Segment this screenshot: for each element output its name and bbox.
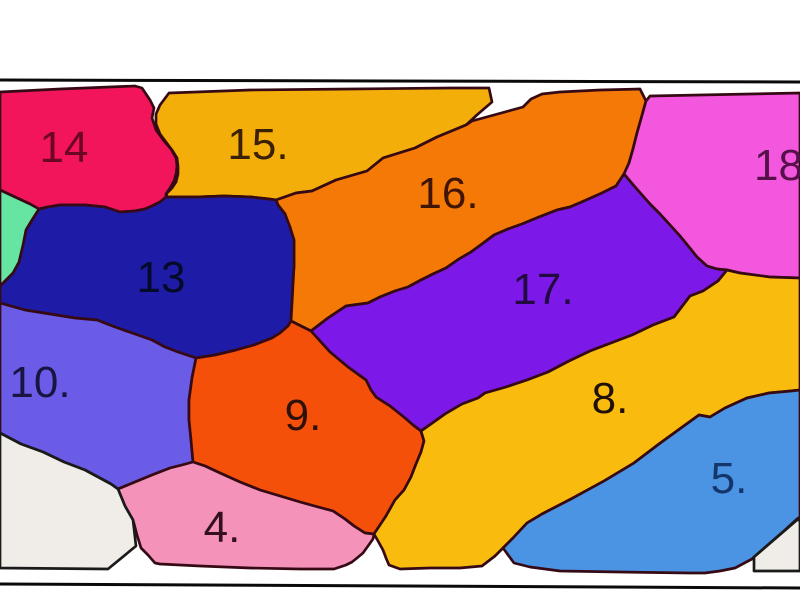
svg-text:18.: 18. [754, 141, 800, 190]
svg-text:8.: 8. [592, 374, 629, 423]
svg-text:4.: 4. [204, 503, 241, 552]
svg-text:9.: 9. [285, 391, 322, 440]
svg-text:17.: 17. [512, 265, 573, 314]
svg-text:10.: 10. [9, 358, 70, 407]
svg-text:15.: 15. [227, 120, 288, 169]
svg-text:14: 14 [40, 123, 89, 172]
svg-text:5.: 5. [711, 454, 748, 503]
svg-text:16.: 16. [417, 169, 478, 218]
svg-text:13: 13 [137, 253, 186, 302]
